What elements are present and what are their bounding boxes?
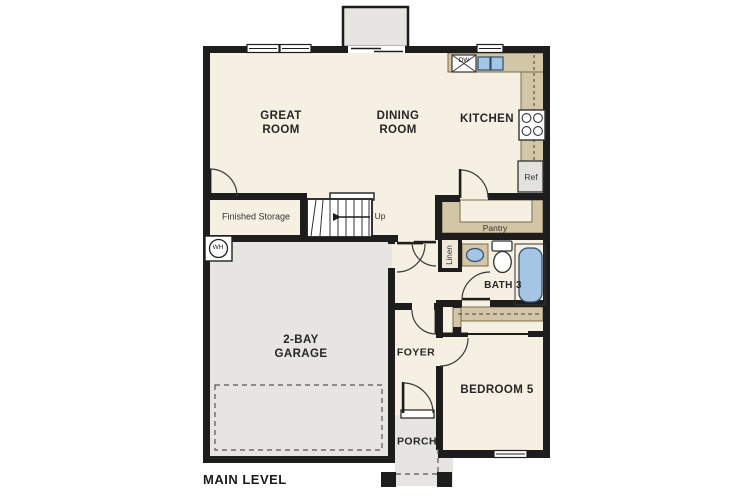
up-label: Up [375, 211, 386, 221]
wall-garage-right-b [388, 268, 395, 458]
plan-title: MAIN LEVEL [203, 472, 287, 487]
sink-basin-right [491, 57, 503, 70]
porch-label: PORCH [382, 436, 452, 449]
sink-basin-left [478, 57, 490, 70]
closet-wall-cap-top [453, 303, 461, 308]
wh-label: WH [213, 244, 224, 252]
wall-closet-right-stub [528, 331, 543, 337]
dw-label: DW [459, 57, 470, 65]
wall-storage-top [203, 193, 307, 200]
front-door-threshold [401, 410, 434, 418]
kitchen-label: KITCHEN [427, 113, 547, 127]
bath3-label: BATH 3 [482, 280, 524, 292]
wall-garage-right-a [388, 235, 395, 244]
porch-post-right [437, 472, 452, 487]
wall-hall-foyer-a [395, 303, 412, 310]
floor-plan: GREAT ROOM DINING ROOM KITCHEN 2-BAY GAR… [0, 0, 750, 500]
great-room-label: GREAT ROOM [240, 110, 322, 138]
vanity-sink-icon [467, 249, 484, 262]
wall-pantry-top-right [488, 193, 550, 200]
closet-wall-cap-bottom [453, 327, 461, 333]
pantry-floor-notch [460, 200, 532, 222]
wall-garage-bottom [203, 456, 395, 463]
wall-bath-bottom-right [490, 300, 550, 307]
ref-label: Ref [524, 172, 537, 182]
fireplace-bumpout [343, 7, 408, 47]
staircase [307, 193, 374, 237]
pantry-label: Pantry [483, 223, 508, 233]
bathtub-icon [515, 244, 545, 305]
toilet-icon [492, 241, 512, 273]
garage-label: 2-BAY GARAGE [256, 334, 346, 362]
finished-storage-label: Finished Storage [221, 212, 291, 223]
dining-room-label: DINING ROOM [363, 110, 433, 138]
bedroom5-label: BEDROOM 5 [437, 384, 557, 398]
porch-floor [395, 415, 438, 486]
floor-plan-svg [0, 0, 750, 500]
foyer-label: FOYER [376, 347, 456, 360]
linen-label: Linen [445, 245, 455, 265]
wall-stair-left [300, 198, 307, 242]
porch-post-left [381, 472, 396, 487]
